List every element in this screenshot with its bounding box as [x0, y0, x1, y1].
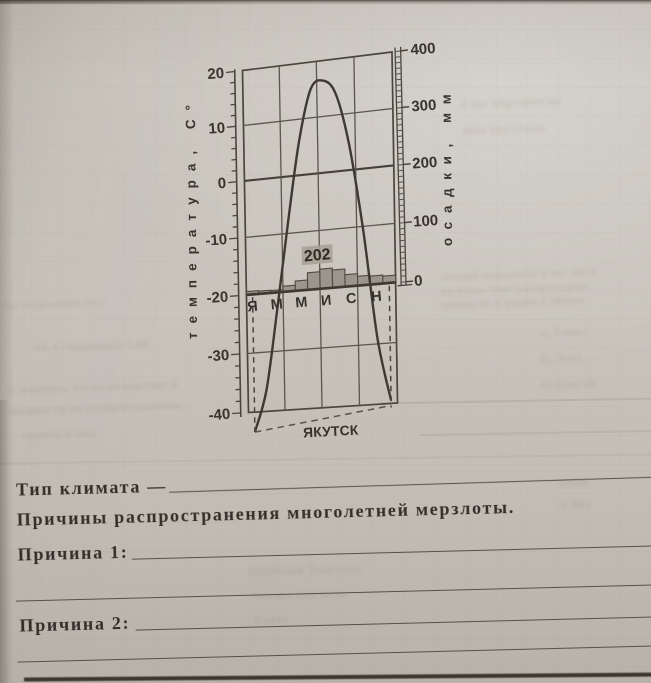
- svg-text:М: М: [270, 297, 283, 314]
- svg-text:0: 0: [414, 272, 424, 290]
- svg-text:100: 100: [413, 212, 439, 231]
- svg-text:И: И: [320, 293, 332, 310]
- svg-text:-40: -40: [208, 406, 231, 424]
- svg-text:-20: -20: [206, 289, 229, 307]
- svg-text:-30: -30: [207, 347, 230, 365]
- svg-text:-10: -10: [205, 231, 228, 249]
- svg-text:Я: Я: [247, 299, 259, 316]
- svg-text:202: 202: [303, 246, 331, 265]
- svg-text:20: 20: [207, 65, 225, 83]
- svg-text:200: 200: [412, 154, 438, 173]
- svg-text:0: 0: [217, 175, 227, 193]
- svg-text:М: М: [295, 295, 308, 312]
- svg-text:400: 400: [410, 40, 436, 59]
- svg-text:С: С: [345, 291, 357, 308]
- svg-text:температура, С°: температура, С°: [183, 96, 200, 339]
- svg-text:Н: Н: [371, 289, 383, 306]
- svg-text:осадки, мм: осадки, мм: [439, 86, 455, 246]
- svg-text:10: 10: [208, 120, 226, 138]
- svg-text:ЯКУТСК: ЯКУТСК: [303, 423, 359, 441]
- svg-text:300: 300: [411, 97, 437, 116]
